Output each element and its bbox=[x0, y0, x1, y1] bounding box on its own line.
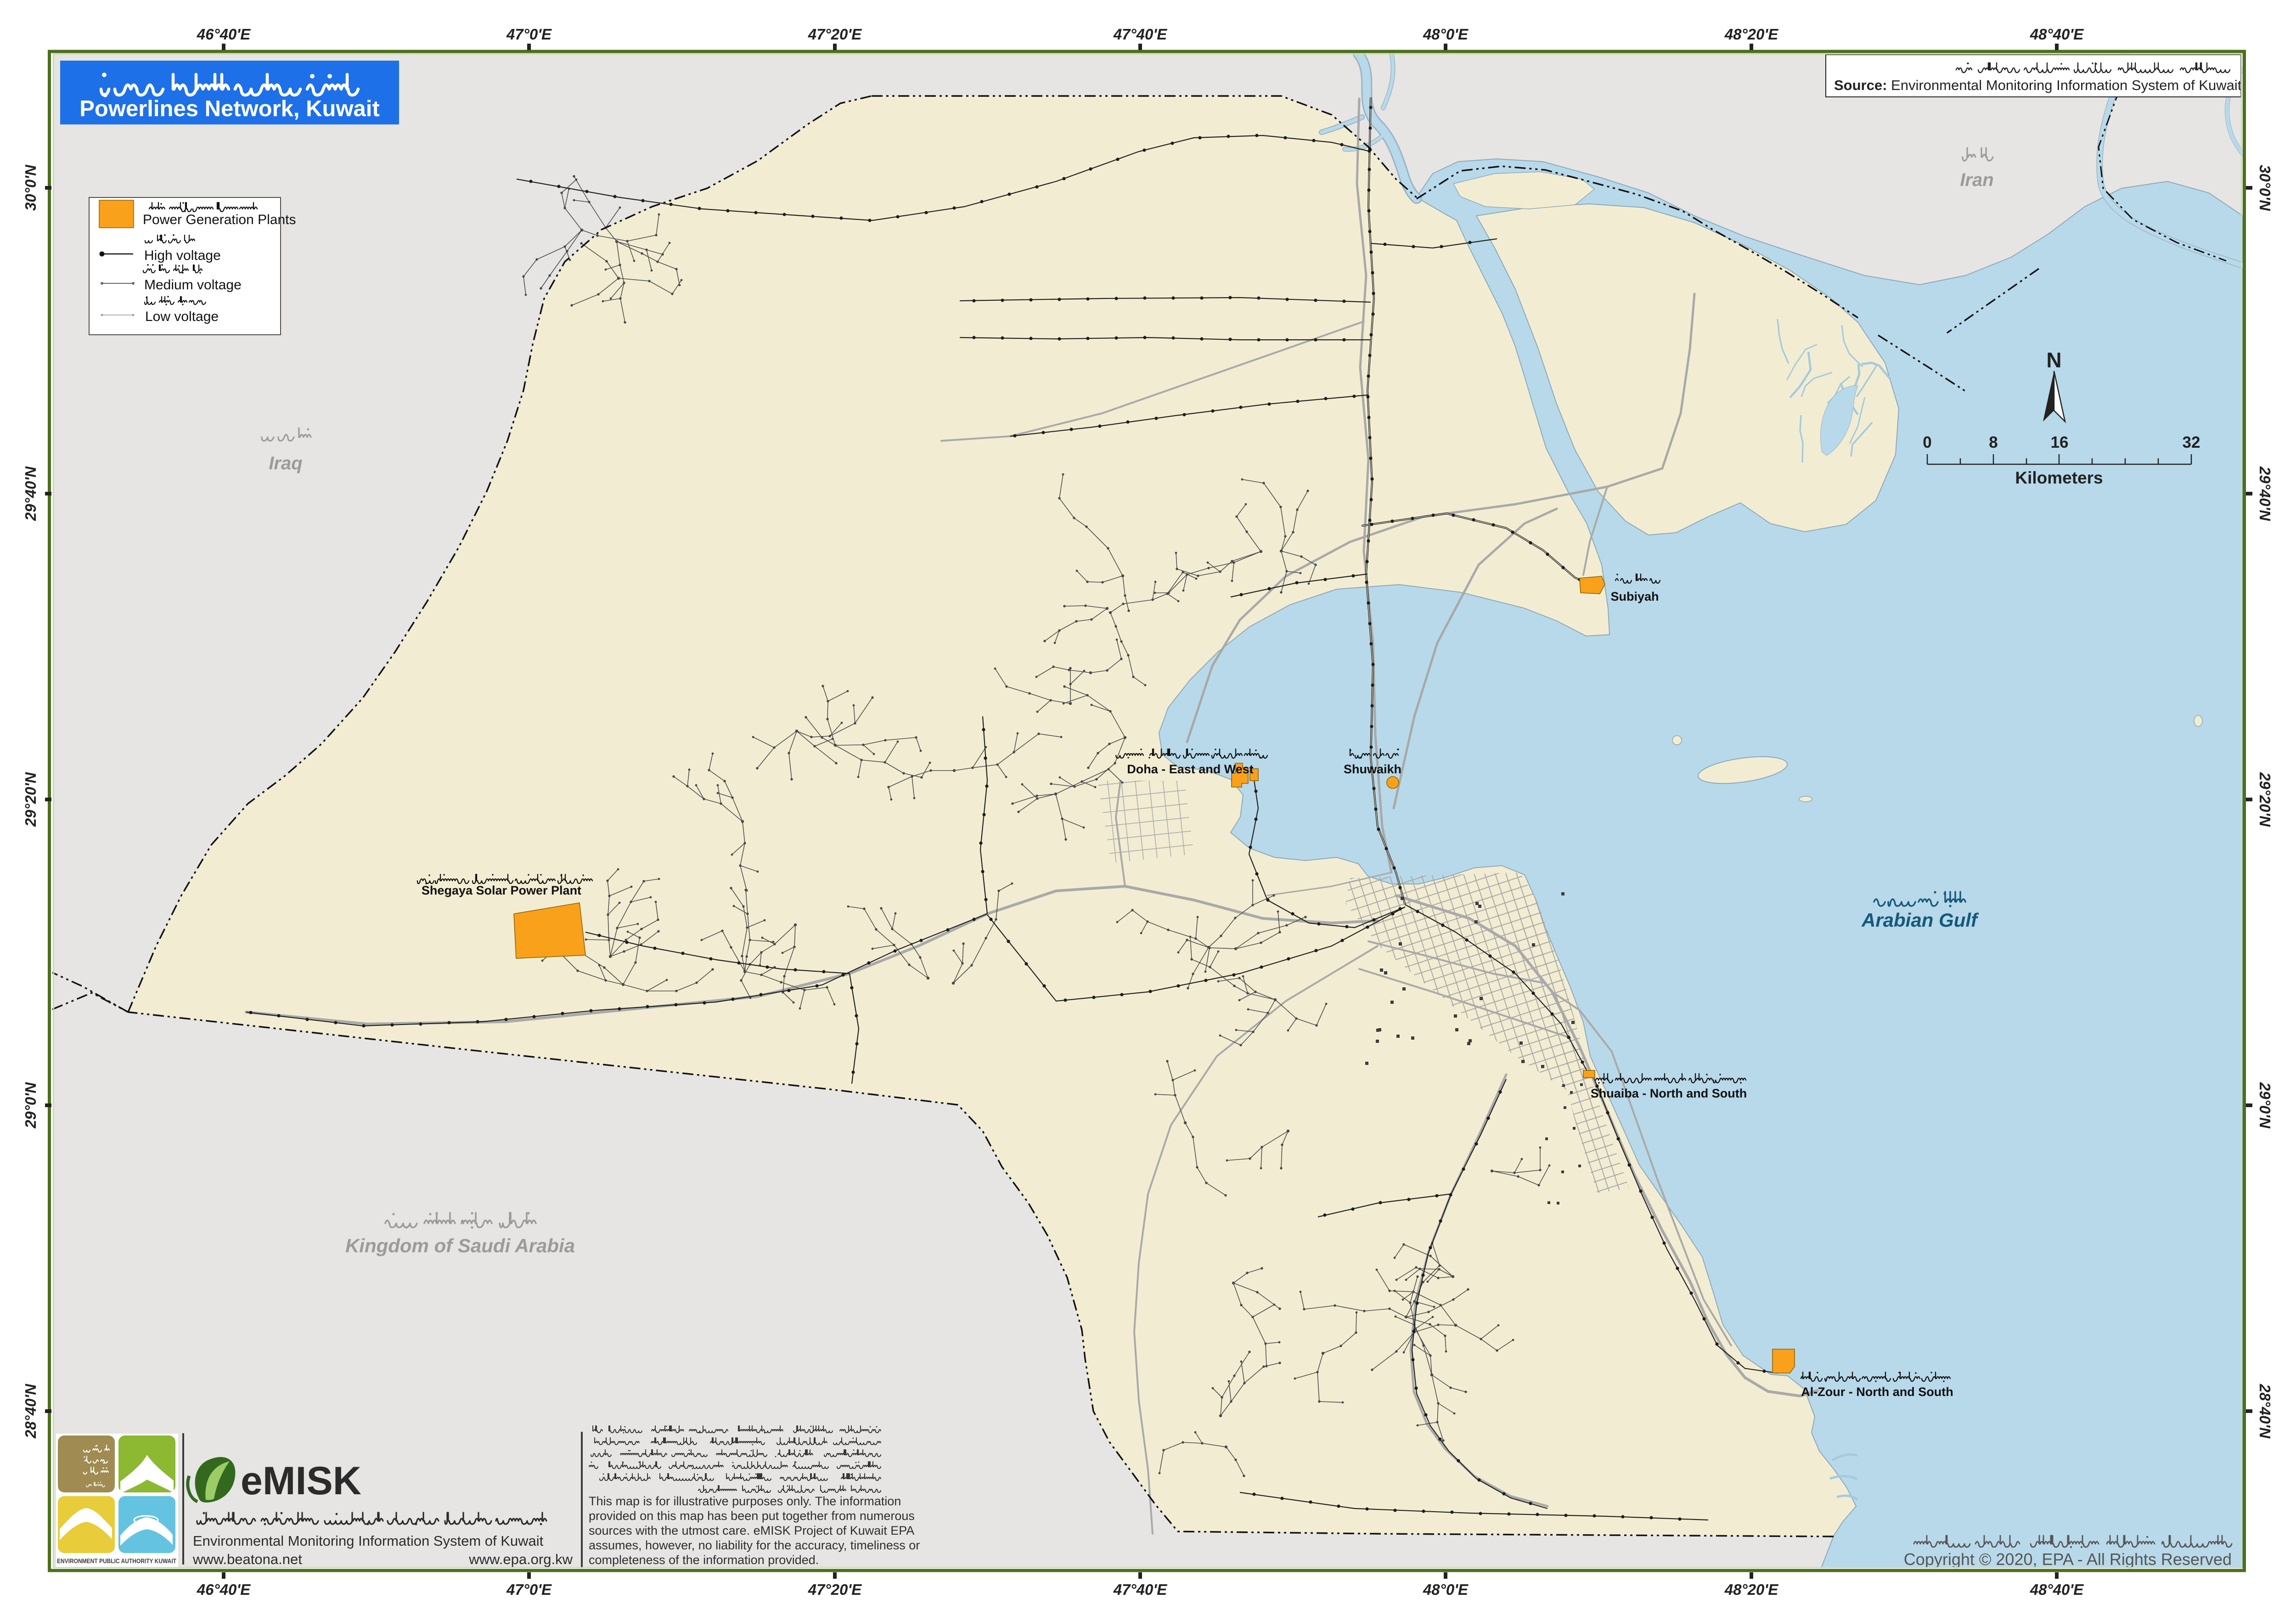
svg-text:16: 16 bbox=[2051, 433, 2069, 451]
svg-text:29°20'N: 29°20'N bbox=[22, 772, 39, 827]
svg-text:Iraq: Iraq bbox=[269, 453, 302, 473]
svg-text:assumes, however, no liability: assumes, however, no liability for the a… bbox=[589, 1538, 920, 1552]
svg-text:30°0'N: 30°0'N bbox=[22, 164, 39, 211]
svg-text:47°0'E: 47°0'E bbox=[506, 1581, 552, 1598]
svg-text:Doha - East and West: Doha - East and West bbox=[1127, 762, 1254, 776]
svg-text:8: 8 bbox=[1989, 433, 1998, 451]
svg-text:Arabian Gulf: Arabian Gulf bbox=[1861, 909, 1979, 931]
svg-text:Shuwaikh: Shuwaikh bbox=[1344, 762, 1401, 776]
svg-text:eMISK: eMISK bbox=[241, 1459, 361, 1503]
svg-text:Kingdom of Saudi Arabia: Kingdom of Saudi Arabia bbox=[345, 1235, 575, 1256]
svg-text:Low voltage: Low voltage bbox=[145, 309, 219, 324]
svg-text:28°40'N: 28°40'N bbox=[2257, 1384, 2273, 1439]
svg-text:Powerlines Network, Kuwait: Powerlines Network, Kuwait bbox=[79, 96, 380, 121]
svg-text:Al-Zour - North and South: Al-Zour - North and South bbox=[1801, 1385, 1953, 1399]
svg-text:48°40'E: 48°40'E bbox=[2030, 1581, 2084, 1598]
svg-text:29°0'N: 29°0'N bbox=[22, 1082, 39, 1129]
svg-text:Iran: Iran bbox=[1960, 170, 1993, 190]
svg-text:48°20'E: 48°20'E bbox=[1724, 1581, 1778, 1598]
svg-text:Copyright © 2020, EPA - All Ri: Copyright © 2020, EPA - All Rights Reser… bbox=[1904, 1550, 2232, 1569]
svg-text:48°0'E: 48°0'E bbox=[1423, 26, 1469, 43]
svg-text:30°0'N: 30°0'N bbox=[2257, 165, 2273, 211]
svg-text:Shegaya Solar Power Plant: Shegaya Solar Power Plant bbox=[422, 884, 581, 897]
svg-text:48°0'E: 48°0'E bbox=[1423, 1581, 1469, 1598]
svg-text:High voltage: High voltage bbox=[144, 248, 221, 263]
svg-text:completeness of the informatio: completeness of the information provided… bbox=[589, 1553, 819, 1567]
svg-text:This map is for illustrative p: This map is for illustrative purposes on… bbox=[589, 1494, 901, 1508]
svg-text:0: 0 bbox=[1923, 433, 1931, 451]
svg-text:32: 32 bbox=[2183, 433, 2200, 451]
svg-text:47°40'E: 47°40'E bbox=[1113, 1581, 1167, 1598]
svg-text:47°20'E: 47°20'E bbox=[808, 26, 862, 43]
svg-text:Subiyah: Subiyah bbox=[1610, 590, 1659, 603]
svg-text:46°40'E: 46°40'E bbox=[197, 1581, 251, 1598]
svg-text:29°20'N: 29°20'N bbox=[2257, 772, 2273, 827]
svg-text:Environmental Monitoring Infor: Environmental Monitoring Information Sys… bbox=[193, 1533, 544, 1549]
svg-text:provided on this map has been: provided on this map has been put togeth… bbox=[589, 1509, 915, 1523]
svg-text:ENVIRONMENT PUBLIC AUTHORITY K: ENVIRONMENT PUBLIC AUTHORITY KUWAIT bbox=[57, 1557, 176, 1565]
svg-text:47°20'E: 47°20'E bbox=[808, 1581, 862, 1598]
svg-text:www.epa.org.kw: www.epa.org.kw bbox=[468, 1551, 573, 1567]
svg-text:Source: Environmental Monitori: Source: Environmental Monitoring Informa… bbox=[1834, 77, 2242, 93]
svg-text:48°20'E: 48°20'E bbox=[1724, 26, 1778, 43]
svg-text:28°40'N: 28°40'N bbox=[22, 1384, 39, 1439]
svg-text:29°40'N: 29°40'N bbox=[22, 466, 39, 521]
svg-text:www.beatona.net: www.beatona.net bbox=[192, 1551, 302, 1567]
svg-text:Shuaiba - North and South: Shuaiba - North and South bbox=[1591, 1086, 1747, 1100]
svg-text:Power Generation Plants: Power Generation Plants bbox=[143, 212, 296, 227]
svg-text:N: N bbox=[2046, 348, 2061, 372]
svg-text:47°0'E: 47°0'E bbox=[506, 26, 552, 43]
svg-text:sources with the utmost care.: sources with the utmost care. eMISK Proj… bbox=[589, 1524, 914, 1537]
svg-text:Kilometers: Kilometers bbox=[2015, 468, 2103, 487]
svg-text:29°0'N: 29°0'N bbox=[2257, 1082, 2273, 1129]
svg-text:47°40'E: 47°40'E bbox=[1113, 26, 1167, 43]
svg-text:29°40'N: 29°40'N bbox=[2257, 466, 2273, 521]
svg-text:48°40'E: 48°40'E bbox=[2030, 26, 2084, 43]
svg-text:Medium voltage: Medium voltage bbox=[144, 277, 242, 293]
svg-text:46°40'E: 46°40'E bbox=[197, 26, 251, 43]
